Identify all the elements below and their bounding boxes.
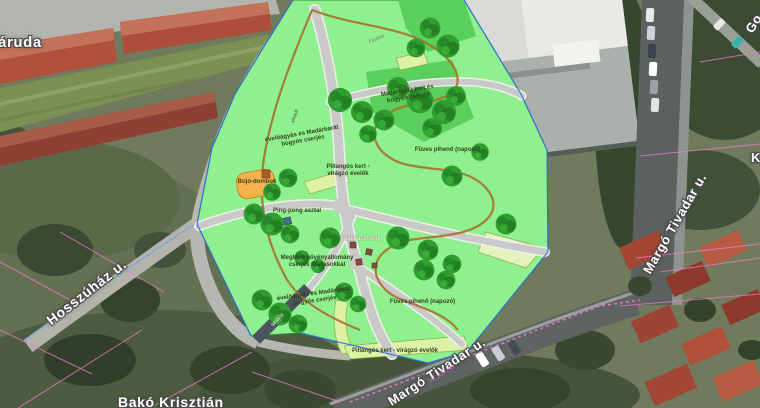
place-label-k-partial[interactable]: K bbox=[751, 150, 760, 165]
plan-label-butterfly-north: Pillangós kert - virágzó évelők bbox=[312, 164, 384, 178]
map-graphics bbox=[0, 0, 760, 408]
plan-label-chess: Sakkasztalok bbox=[334, 236, 390, 243]
plan-label-existing-veg: Meglévő növényállomány cserjés tisztások… bbox=[272, 255, 362, 269]
plan-label-butterfly-south: Pillangós kert - virágzó évelők bbox=[330, 348, 460, 355]
plan-label-pingpong: Ping-pong asztal bbox=[266, 208, 328, 215]
plan-label-hide-mounds: Bújó-dombok bbox=[232, 179, 282, 186]
place-label-bako-krisztian[interactable]: Bakó Krisztián bbox=[118, 394, 224, 408]
map-canvas[interactable]: Madárbarát kert és bogyós cserjék évelőá… bbox=[0, 0, 760, 408]
plan-label-lawn-south: Füves pihenő (napozó) bbox=[375, 299, 470, 306]
plan-label-lawn-north: Füves pihenő (napozó) bbox=[400, 147, 495, 154]
place-label-aruda[interactable]: áruda bbox=[0, 34, 42, 51]
